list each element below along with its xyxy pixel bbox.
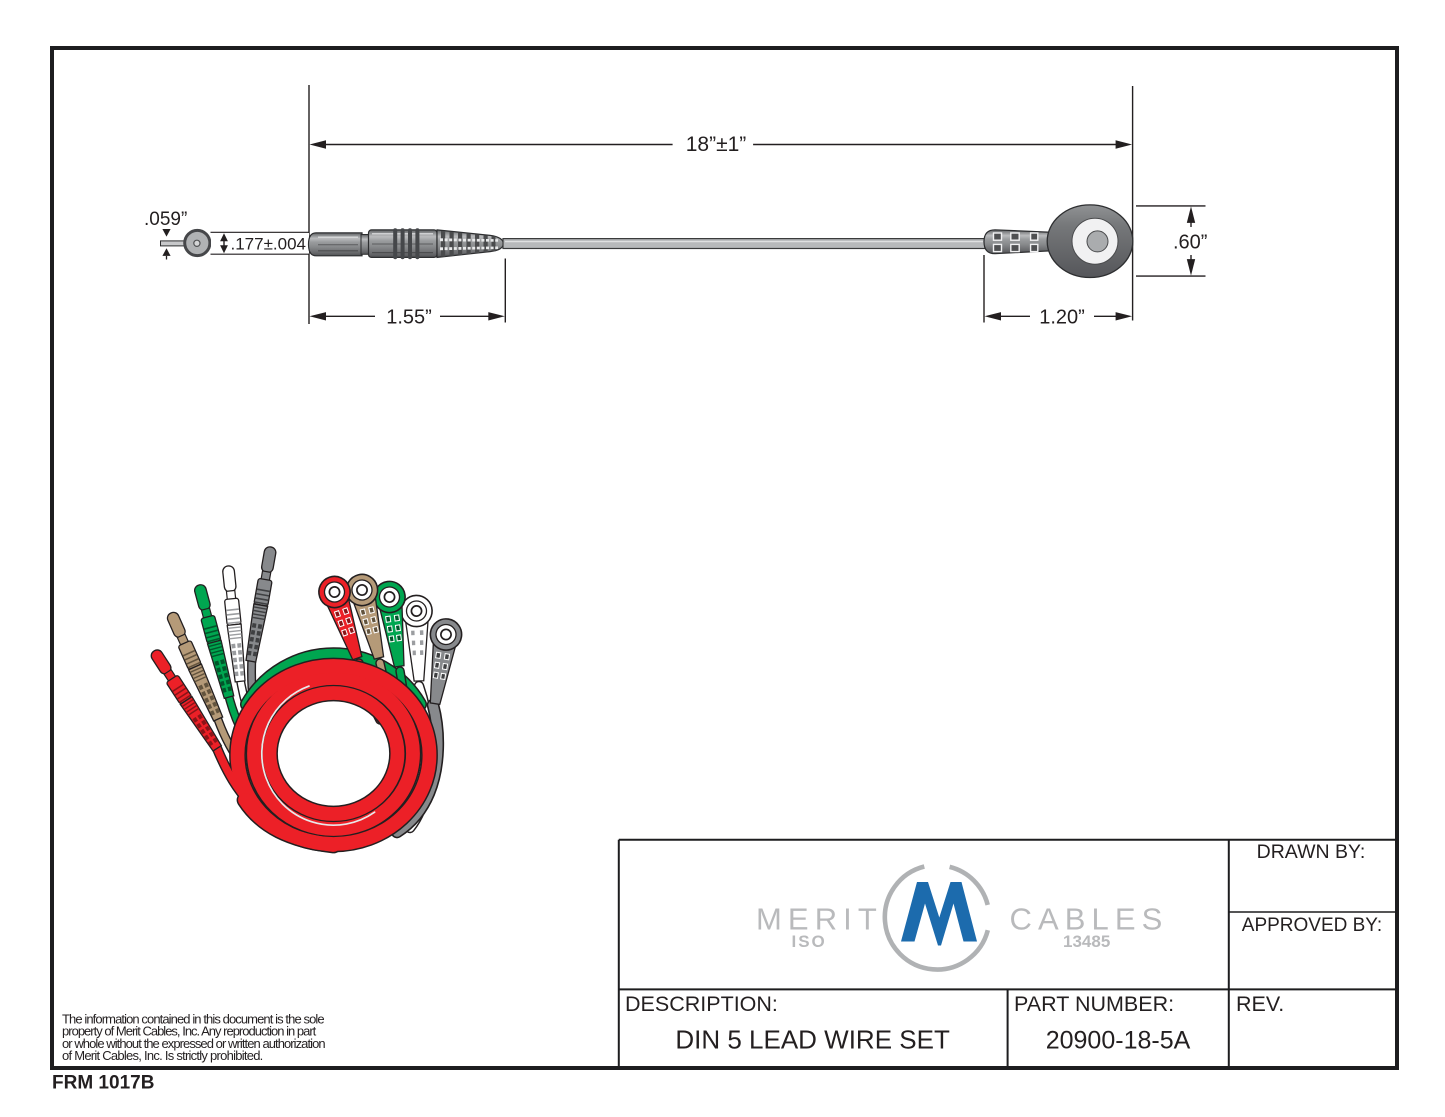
svg-text:of Merit Cables, Inc. Is stric: of Merit Cables, Inc. Is strictly prohib… (62, 1048, 263, 1063)
svg-text:13485: 13485 (1063, 932, 1110, 951)
svg-text:.177±.004: .177±.004 (231, 235, 307, 254)
svg-text:1.20”: 1.20” (1039, 307, 1085, 329)
svg-text:DESCRIPTION:: DESCRIPTION: (625, 992, 778, 1016)
svg-text:DRAWN BY:: DRAWN BY: (1257, 841, 1366, 863)
svg-text:PART NUMBER:: PART NUMBER: (1014, 992, 1174, 1016)
svg-text:ISO: ISO (792, 932, 827, 951)
svg-text:REV.: REV. (1236, 992, 1284, 1016)
svg-text:1.55”: 1.55” (386, 307, 432, 329)
svg-text:.60”: .60” (1173, 231, 1207, 253)
svg-text:APPROVED BY:: APPROVED BY: (1242, 915, 1382, 936)
svg-text:FRM 1017B: FRM 1017B (52, 1073, 154, 1094)
svg-text:20900-18-5A: 20900-18-5A (1046, 1027, 1191, 1055)
svg-text:DIN 5 LEAD WIRE SET: DIN 5 LEAD WIRE SET (675, 1025, 950, 1055)
svg-text:18”±1”: 18”±1” (686, 133, 747, 156)
svg-text:.059”: .059” (144, 209, 187, 230)
